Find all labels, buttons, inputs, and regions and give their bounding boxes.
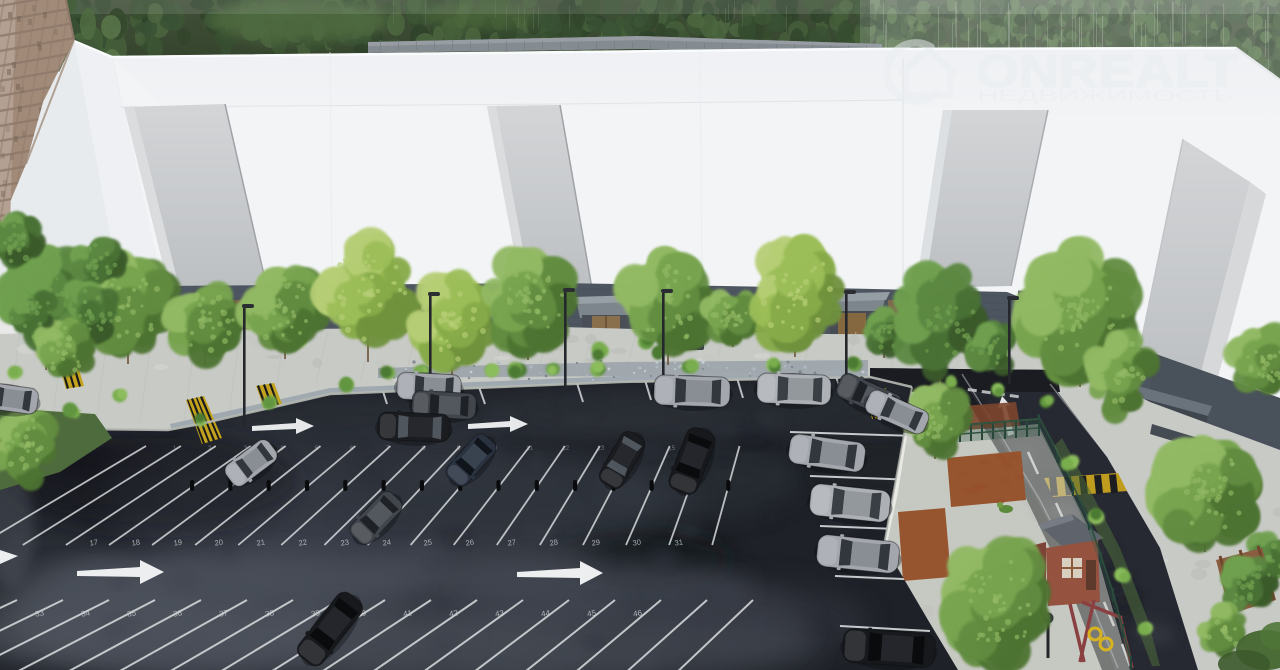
svg-text:28: 28 [549, 537, 559, 547]
svg-text:17: 17 [89, 537, 99, 547]
svg-text:30: 30 [632, 537, 642, 547]
svg-text:31: 31 [674, 537, 684, 547]
svg-text:27: 27 [507, 537, 517, 547]
svg-text:13: 13 [597, 444, 606, 452]
svg-text:25: 25 [423, 537, 433, 547]
svg-text:12: 12 [562, 444, 571, 452]
svg-text:18: 18 [131, 537, 141, 547]
svg-text:24: 24 [382, 537, 392, 547]
svg-text:19: 19 [173, 537, 183, 547]
svg-text:15: 15 [668, 444, 677, 452]
svg-text:НЕДВИЖИМОСТЬ: НЕДВИЖИМОСТЬ [977, 88, 1233, 105]
svg-text:11: 11 [526, 445, 534, 453]
svg-text:29: 29 [591, 537, 601, 547]
svg-text:20: 20 [214, 537, 224, 547]
svg-text:23: 23 [340, 537, 350, 547]
svg-text:26: 26 [465, 537, 475, 547]
svg-text:21: 21 [256, 537, 266, 547]
svg-text:22: 22 [298, 537, 308, 547]
